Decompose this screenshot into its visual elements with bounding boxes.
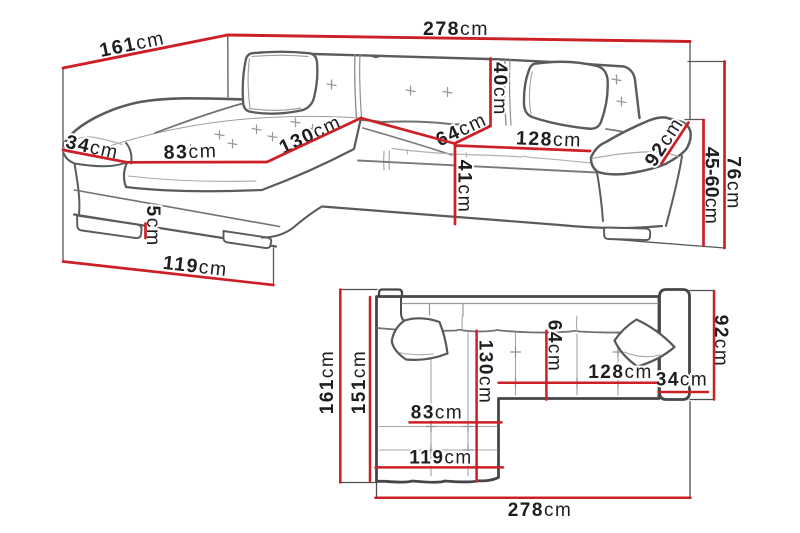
svg-text:40cm: 40cm <box>489 62 511 116</box>
svg-text:41cm: 41cm <box>454 160 476 214</box>
svg-text:151cm: 151cm <box>349 350 370 415</box>
svg-text:278cm: 278cm <box>508 500 573 521</box>
svg-text:83cm: 83cm <box>163 140 217 164</box>
svg-text:161cm: 161cm <box>317 350 338 415</box>
svg-text:128cm: 128cm <box>588 362 653 383</box>
svg-text:119cm: 119cm <box>409 448 472 469</box>
svg-text:34cm: 34cm <box>656 370 708 391</box>
svg-text:83cm: 83cm <box>411 403 463 424</box>
